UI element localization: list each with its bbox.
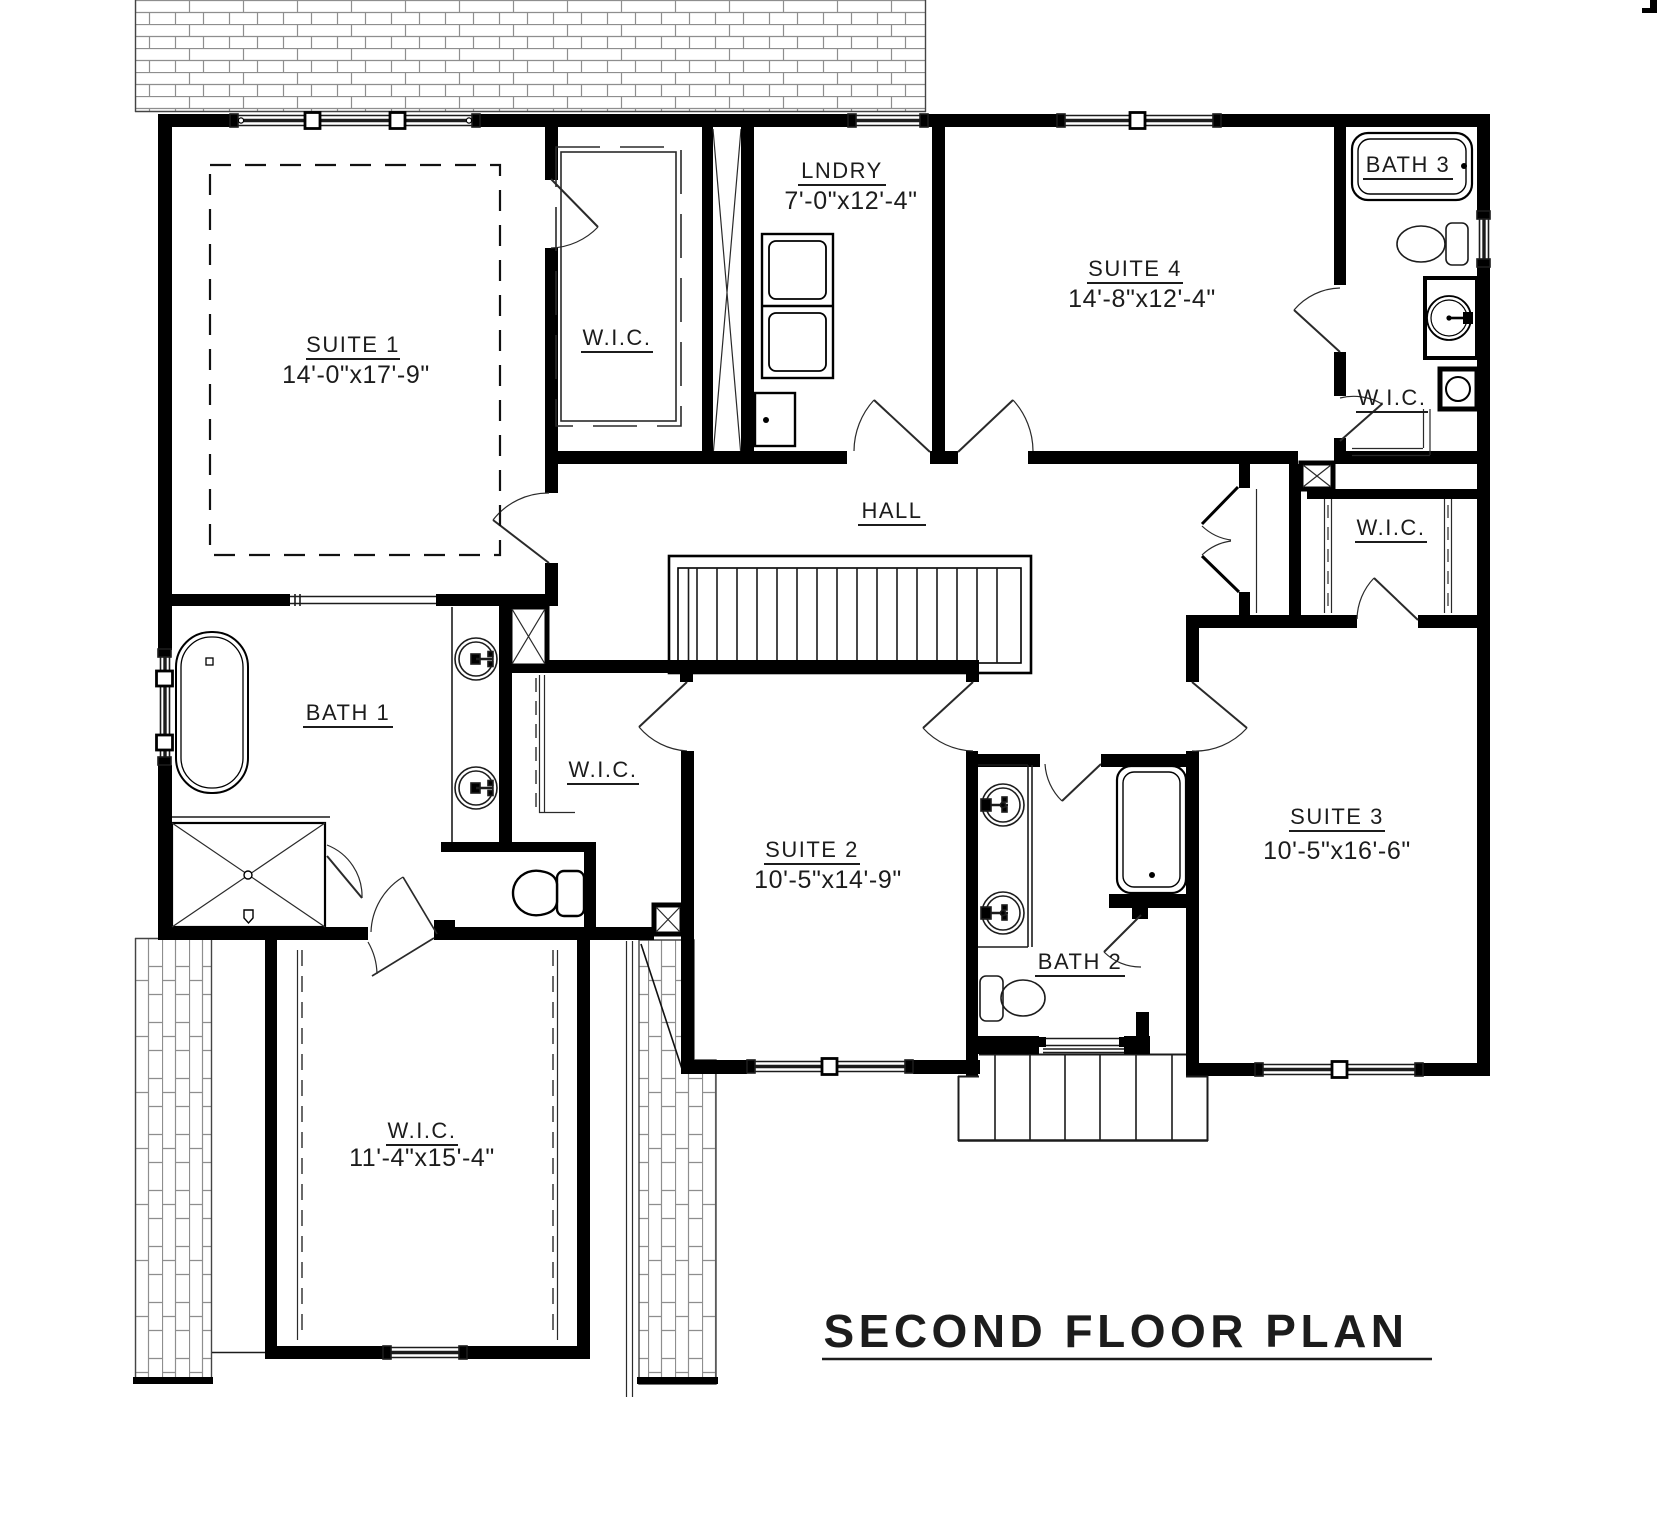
svg-text:14'-0"x17'-9": 14'-0"x17'-9" [282,361,430,389]
svg-text:W.I.C.: W.I.C. [1358,385,1427,410]
svg-text:BATH 3: BATH 3 [1366,152,1450,177]
svg-text:SUITE 2: SUITE 2 [765,837,859,862]
svg-text:LNDRY: LNDRY [801,158,883,183]
svg-text:W.I.C.: W.I.C. [1357,515,1426,540]
svg-text:11'-4"x15'-4": 11'-4"x15'-4" [349,1144,495,1172]
svg-text:7'-0"x12'-4": 7'-0"x12'-4" [784,187,917,215]
svg-text:BATH 2: BATH 2 [1038,949,1122,974]
svg-text:10'-5"x14'-9": 10'-5"x14'-9" [754,866,902,894]
svg-text:W.I.C.: W.I.C. [388,1118,457,1143]
svg-text:HALL: HALL [861,498,922,523]
svg-text:SUITE 4: SUITE 4 [1088,256,1182,281]
svg-text:10'-5"x16'-6": 10'-5"x16'-6" [1263,837,1411,865]
svg-text:14'-8"x12'-4": 14'-8"x12'-4" [1068,285,1216,313]
svg-text:SECOND FLOOR PLAN: SECOND FLOOR PLAN [823,1305,1408,1357]
svg-text:BATH 1: BATH 1 [306,700,390,725]
svg-text:W.I.C.: W.I.C. [569,757,638,782]
svg-text:SUITE 3: SUITE 3 [1290,804,1384,829]
svg-text:SUITE 1: SUITE 1 [306,332,400,357]
svg-text:W.I.C.: W.I.C. [583,325,652,350]
